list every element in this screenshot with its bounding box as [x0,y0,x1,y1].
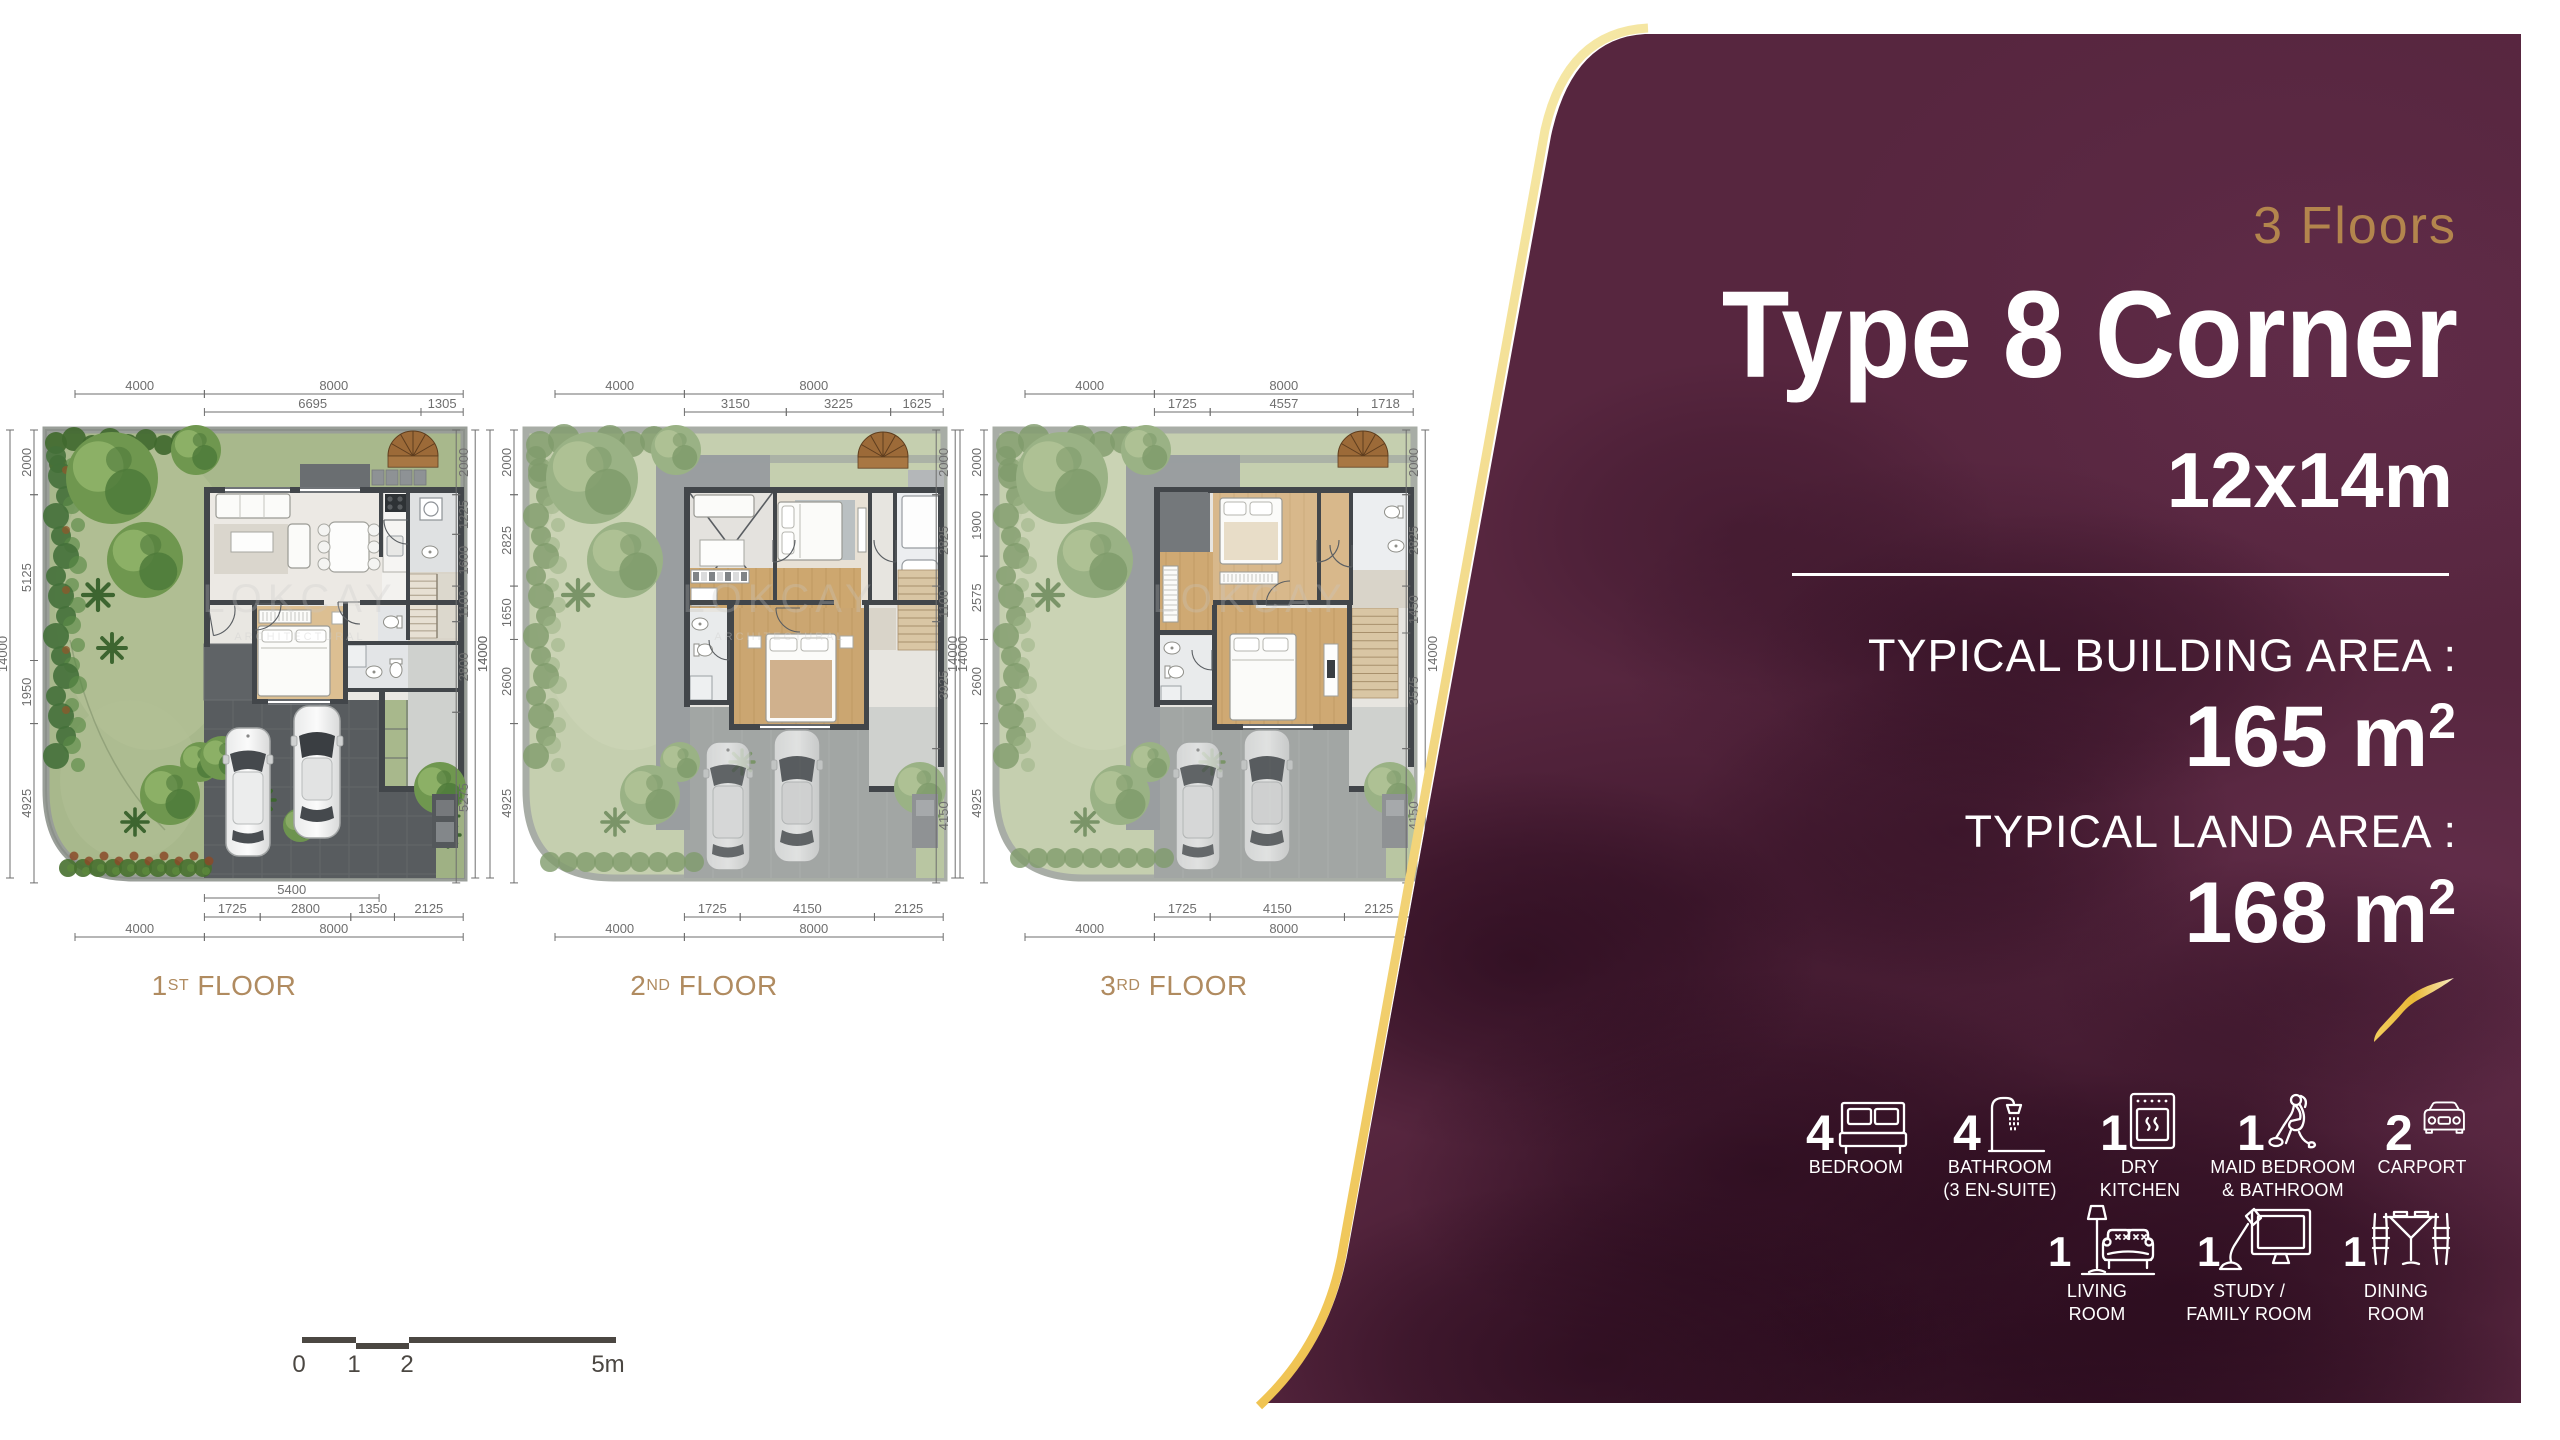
svg-text:BEDROOM: BEDROOM [1809,1157,1903,1177]
svg-text:FAMILY ROOM: FAMILY ROOM [2186,1304,2312,1324]
svg-text:1: 1 [2048,1228,2071,1275]
svg-text:1: 1 [2343,1228,2366,1275]
svg-text:4: 4 [1953,1105,1981,1161]
svg-text:ROOM: ROOM [2069,1304,2126,1324]
svg-text:LIVING: LIVING [2067,1281,2127,1301]
svg-text:1: 1 [2237,1105,2265,1161]
svg-text:ROOM: ROOM [2368,1304,2425,1324]
svg-text:2: 2 [2385,1105,2413,1161]
svg-text:DINING: DINING [2364,1281,2428,1301]
svg-text:DRY: DRY [2121,1157,2159,1177]
svg-text:4: 4 [1806,1105,1834,1161]
svg-text:CARPORT: CARPORT [2377,1157,2466,1177]
svg-text:STUDY /: STUDY / [2213,1281,2285,1301]
svg-text:MAID BEDROOM: MAID BEDROOM [2210,1157,2355,1177]
svg-text:1: 1 [2197,1228,2220,1275]
svg-text:BATHROOM: BATHROOM [1948,1157,2052,1177]
svg-text:1: 1 [2100,1105,2128,1161]
